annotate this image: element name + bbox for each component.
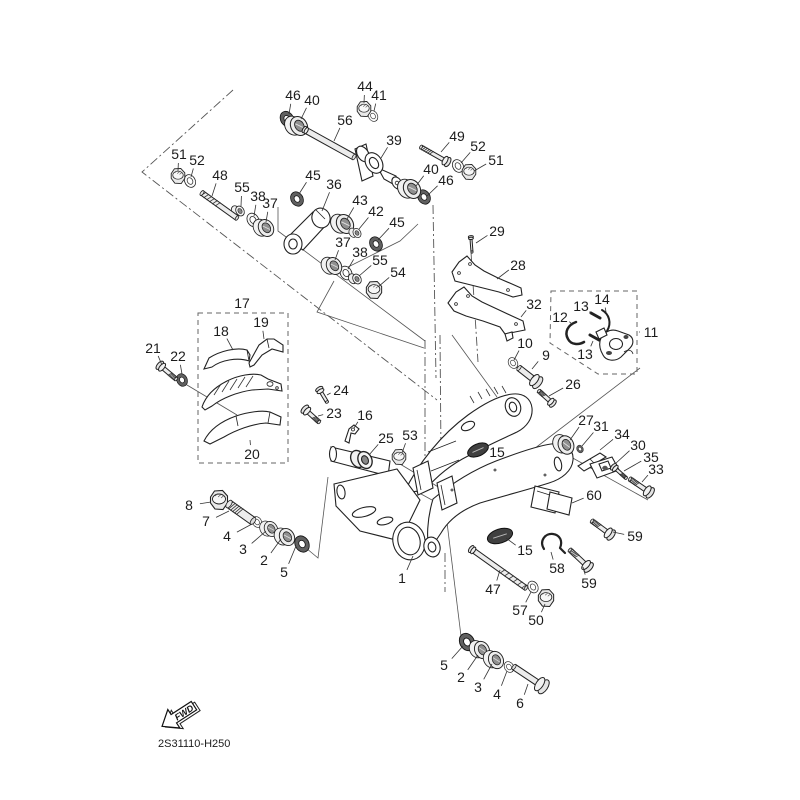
- leader-line: [359, 218, 368, 229]
- part-number-13: 13: [573, 298, 589, 314]
- part-number-46: 46: [438, 172, 454, 188]
- callout-11: 11: [639, 324, 658, 340]
- callout-16: 16: [354, 407, 373, 428]
- callout-46: 46: [285, 87, 301, 114]
- leader-line: [624, 461, 641, 471]
- part-number-36: 36: [326, 176, 342, 192]
- part-number-20: 20: [244, 446, 260, 462]
- callout-4: 4: [493, 671, 507, 702]
- leader-line: [416, 176, 424, 186]
- leader-line: [526, 592, 531, 602]
- callout-58: 58: [549, 552, 565, 576]
- leader-line: [572, 498, 584, 503]
- leader-line: [378, 228, 389, 240]
- part-number-55: 55: [372, 252, 388, 268]
- part-number-14: 14: [594, 291, 610, 307]
- part-seal: [575, 444, 584, 454]
- part-bolt: [468, 235, 474, 253]
- part-bolt: [513, 362, 544, 391]
- part-number-57: 57: [512, 602, 528, 618]
- callout-22: 22: [170, 348, 186, 374]
- callout-40: 40: [416, 161, 439, 186]
- leader-line: [501, 671, 507, 686]
- part-number-31: 31: [593, 418, 609, 434]
- callout-9: 9: [532, 347, 550, 369]
- part-nut: [538, 589, 553, 606]
- callout-45: 45: [299, 167, 321, 194]
- part-nut: [366, 281, 381, 298]
- callout-51: 51: [171, 146, 187, 171]
- part-number-56: 56: [337, 112, 353, 128]
- callout-43: 43: [347, 192, 368, 219]
- part-nut: [211, 491, 228, 510]
- relay-arm-36: [284, 206, 333, 254]
- leader-line: [237, 524, 252, 532]
- part-wire: [566, 322, 584, 344]
- part-bolt: [565, 545, 595, 574]
- leader-line: [378, 277, 389, 287]
- part-number-1: 1: [398, 570, 406, 586]
- leader-line: [549, 388, 563, 396]
- callout-7: 7: [202, 511, 229, 529]
- part-seal: [288, 190, 306, 209]
- callout-52: 52: [189, 152, 205, 177]
- callout-8: 8: [185, 497, 211, 513]
- callout-59: 59: [613, 528, 643, 544]
- part-bolt: [301, 126, 357, 161]
- part-number-3: 3: [239, 541, 247, 557]
- leader-line: [301, 108, 306, 119]
- part-wire: [542, 534, 565, 553]
- part-nut: [462, 164, 476, 179]
- part-number-53: 53: [402, 427, 418, 443]
- callout-4: 4: [223, 524, 252, 544]
- part-number-5: 5: [280, 564, 288, 580]
- callout-5: 5: [280, 546, 296, 580]
- part-number-15: 15: [489, 444, 505, 460]
- relay-arm-39: [354, 144, 404, 191]
- part-number-58: 58: [549, 560, 565, 576]
- part-number-11: 11: [644, 324, 659, 340]
- part-number-27: 27: [578, 412, 594, 428]
- part-number-4: 4: [493, 686, 501, 702]
- callout-1: 1: [398, 556, 413, 586]
- callout-56: 56: [334, 112, 353, 141]
- callout-17: 17: [234, 295, 250, 312]
- chain-guide-19: [249, 339, 283, 367]
- part-number-32: 32: [526, 296, 542, 312]
- leader-line: [180, 365, 182, 374]
- part-number-19: 19: [253, 314, 269, 330]
- part-number-34: 34: [614, 426, 630, 442]
- part-number-9: 9: [542, 347, 550, 363]
- part-number-45: 45: [305, 167, 321, 183]
- part-number-48: 48: [212, 167, 228, 183]
- part-nut: [357, 101, 371, 116]
- diagram-code: 2S31110-H250: [158, 738, 230, 750]
- part-number-33: 33: [648, 461, 664, 477]
- part-number-26: 26: [565, 376, 581, 392]
- part-number-59: 59: [581, 575, 597, 591]
- part-number-23: 23: [326, 405, 342, 421]
- part-bolt: [587, 515, 617, 541]
- leader-line: [497, 270, 509, 279]
- part-number-3: 3: [474, 679, 482, 695]
- group-line: [452, 335, 497, 397]
- leader-line: [476, 235, 487, 243]
- leader-line: [474, 164, 486, 171]
- fwd-arrow: FWD: [156, 695, 203, 738]
- leader-line: [427, 186, 438, 196]
- part-number-8: 8: [185, 497, 193, 513]
- callout-40: 40: [301, 92, 320, 119]
- part-number-37: 37: [335, 234, 351, 250]
- leader-line: [381, 147, 388, 158]
- leader-line: [252, 531, 266, 543]
- callout-14: 14: [594, 291, 610, 312]
- part-number-6: 6: [516, 695, 524, 711]
- leader-line: [318, 415, 323, 416]
- callout-37: 37: [262, 195, 278, 222]
- part-number-43: 43: [352, 192, 368, 208]
- callout-10: 10: [514, 335, 533, 360]
- leader-line: [461, 152, 470, 163]
- callout-18: 18: [213, 323, 233, 350]
- chain-tensioner: [596, 328, 633, 360]
- part-number-59: 59: [627, 528, 643, 544]
- part-number-50: 50: [528, 612, 544, 628]
- callout-51: 51: [474, 152, 504, 171]
- leader-line: [642, 475, 648, 482]
- callout-55: 55: [234, 179, 250, 206]
- leader-line: [615, 451, 630, 464]
- callout-24: 24: [327, 382, 349, 398]
- leader-line: [506, 538, 516, 545]
- leader-line: [468, 655, 478, 670]
- part-number-10: 10: [517, 335, 533, 351]
- part-bolt: [315, 385, 331, 405]
- leader-line: [289, 546, 296, 564]
- callout-60: 60: [572, 487, 602, 503]
- leader-line: [600, 439, 613, 450]
- chain-guide-assembled: [202, 374, 282, 410]
- part-number-46: 46: [285, 87, 301, 103]
- part-number-41: 41: [371, 87, 387, 103]
- callout-41: 41: [371, 87, 387, 111]
- leader-line: [441, 142, 449, 152]
- callout-13: 13: [573, 298, 591, 314]
- leader-line: [359, 265, 371, 276]
- part-number-55: 55: [234, 179, 250, 195]
- part-number-16: 16: [357, 407, 373, 423]
- part-number-15: 15: [517, 542, 533, 558]
- callout-2: 2: [260, 539, 281, 568]
- part-bolt: [535, 387, 557, 409]
- part-bolt: [300, 404, 324, 427]
- part-number-28: 28: [510, 257, 526, 273]
- part-nut: [392, 449, 406, 464]
- callout-49: 49: [441, 128, 465, 152]
- part-number-40: 40: [304, 92, 320, 108]
- leader-line: [263, 331, 264, 339]
- parts-diagram: 4640444156394952514046515248553837453643…: [0, 0, 800, 800]
- part-number-18: 18: [213, 323, 229, 339]
- part-number-54: 54: [390, 264, 406, 280]
- part-number-60: 60: [586, 487, 602, 503]
- part-number-45: 45: [389, 214, 405, 230]
- part-number-49: 49: [449, 128, 465, 144]
- part-number-42: 42: [368, 203, 384, 219]
- callout-3: 3: [474, 664, 492, 695]
- leader-line: [369, 444, 378, 455]
- part-number-22: 22: [170, 348, 186, 364]
- centerline: [433, 205, 436, 378]
- leader-line: [327, 393, 331, 395]
- part-rubber-cap: [485, 525, 514, 546]
- leader-line: [212, 183, 216, 196]
- callout-6: 6: [516, 684, 528, 711]
- part-number-40: 40: [423, 161, 439, 177]
- callout-25: 25: [369, 430, 394, 455]
- callout-53: 53: [402, 427, 418, 453]
- chain-guide-18: [204, 349, 250, 369]
- centerline: [440, 335, 441, 455]
- leader-line: [374, 104, 376, 111]
- leader-line: [200, 502, 211, 504]
- part-number-5: 5: [440, 657, 448, 673]
- leader-line: [551, 552, 553, 560]
- part-wire: [591, 313, 600, 318]
- leader-line: [227, 339, 233, 350]
- callout-15: 15: [506, 538, 533, 558]
- callout-48: 48: [212, 167, 228, 196]
- callout-50: 50: [528, 604, 545, 628]
- part-number-29: 29: [489, 223, 505, 239]
- part-seal: [367, 235, 385, 254]
- part-number-51: 51: [171, 146, 187, 162]
- part-number-52: 52: [470, 138, 486, 154]
- part-bolt: [508, 660, 551, 696]
- part-number-12: 12: [552, 309, 568, 325]
- callout-23: 23: [318, 405, 342, 421]
- callout-19: 19: [253, 314, 269, 339]
- callout-26: 26: [549, 376, 581, 396]
- callout-12: 12: [552, 309, 573, 325]
- part-number-17: 17: [234, 295, 250, 311]
- callout-20: 20: [244, 440, 260, 462]
- part-number-2: 2: [260, 552, 268, 568]
- callout-21: 21: [145, 340, 162, 365]
- leader-line: [532, 361, 538, 369]
- part-number-47: 47: [485, 581, 501, 597]
- leader-line: [334, 128, 340, 141]
- part-number-38: 38: [352, 244, 368, 260]
- part-number-13: 13: [577, 346, 593, 362]
- callout-28: 28: [497, 257, 526, 279]
- part-number-37: 37: [262, 195, 278, 211]
- callout-29: 29: [476, 223, 505, 243]
- part-number-4: 4: [223, 528, 231, 544]
- part-number-24: 24: [333, 382, 349, 398]
- callout-36: 36: [322, 176, 342, 211]
- leader-line: [322, 192, 330, 211]
- callout-47: 47: [485, 570, 501, 597]
- part-bolt: [225, 499, 258, 526]
- leader-line: [582, 433, 593, 446]
- part-number-7: 7: [202, 513, 210, 529]
- part-number-2: 2: [457, 669, 465, 685]
- part-number-25: 25: [378, 430, 394, 446]
- leader-line: [570, 427, 579, 440]
- part-number-21: 21: [145, 340, 161, 356]
- chain-guide-20: [204, 411, 281, 444]
- callout-37: 37: [335, 234, 351, 260]
- leader-line: [514, 351, 519, 360]
- part-number-39: 39: [386, 132, 402, 148]
- bracket-16: [345, 425, 359, 443]
- callout-32: 32: [521, 296, 542, 317]
- leader-line: [216, 511, 229, 517]
- callout-39: 39: [381, 132, 402, 158]
- leader-line: [524, 684, 528, 695]
- part-number-52: 52: [189, 152, 205, 168]
- leader-line: [299, 182, 306, 194]
- part-number-51: 51: [488, 152, 504, 168]
- leader-line: [452, 646, 463, 659]
